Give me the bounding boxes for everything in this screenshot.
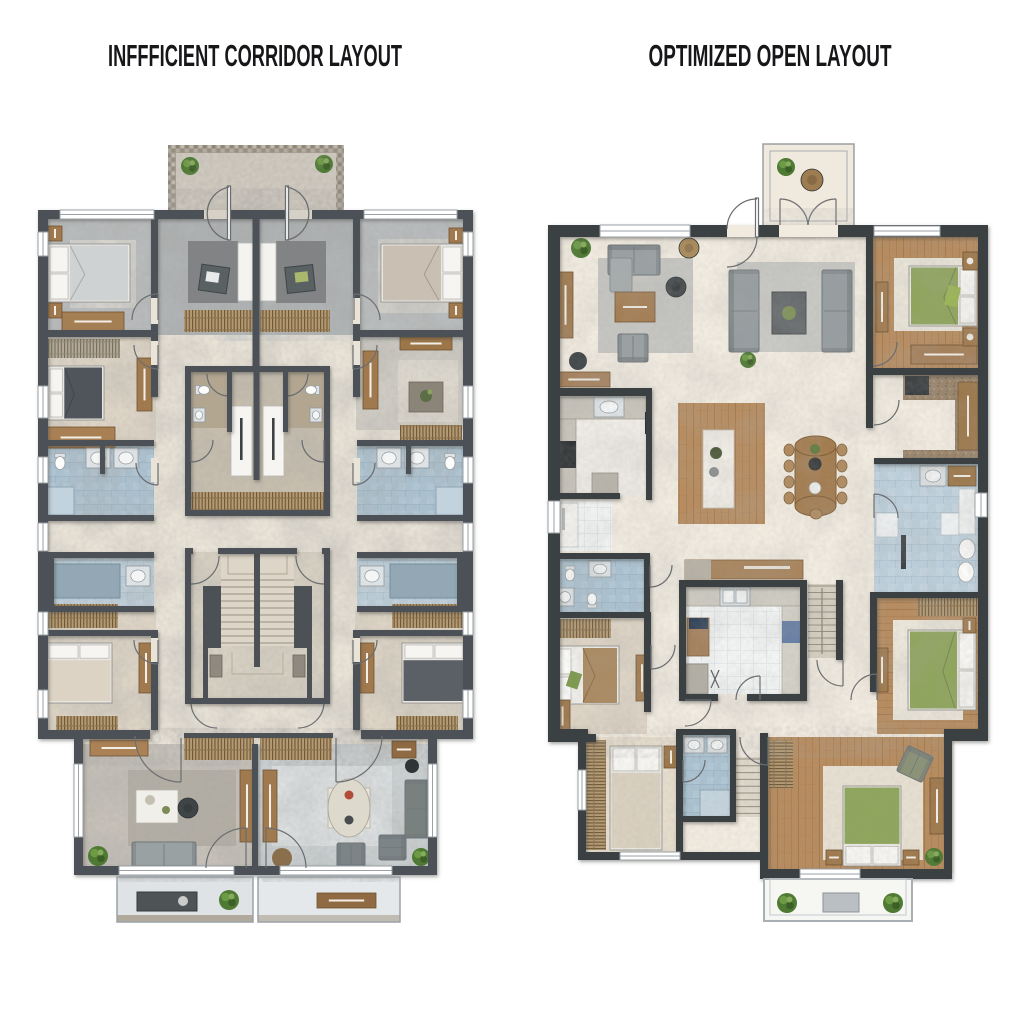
svg-text:OPTIMIZED OPEN LAYOUT: OPTIMIZED OPEN LAYOUT <box>649 38 892 73</box>
svg-text:INFFFICIENT CORRIDOR LAYOUT: INFFFICIENT CORRIDOR LAYOUT <box>108 38 402 73</box>
